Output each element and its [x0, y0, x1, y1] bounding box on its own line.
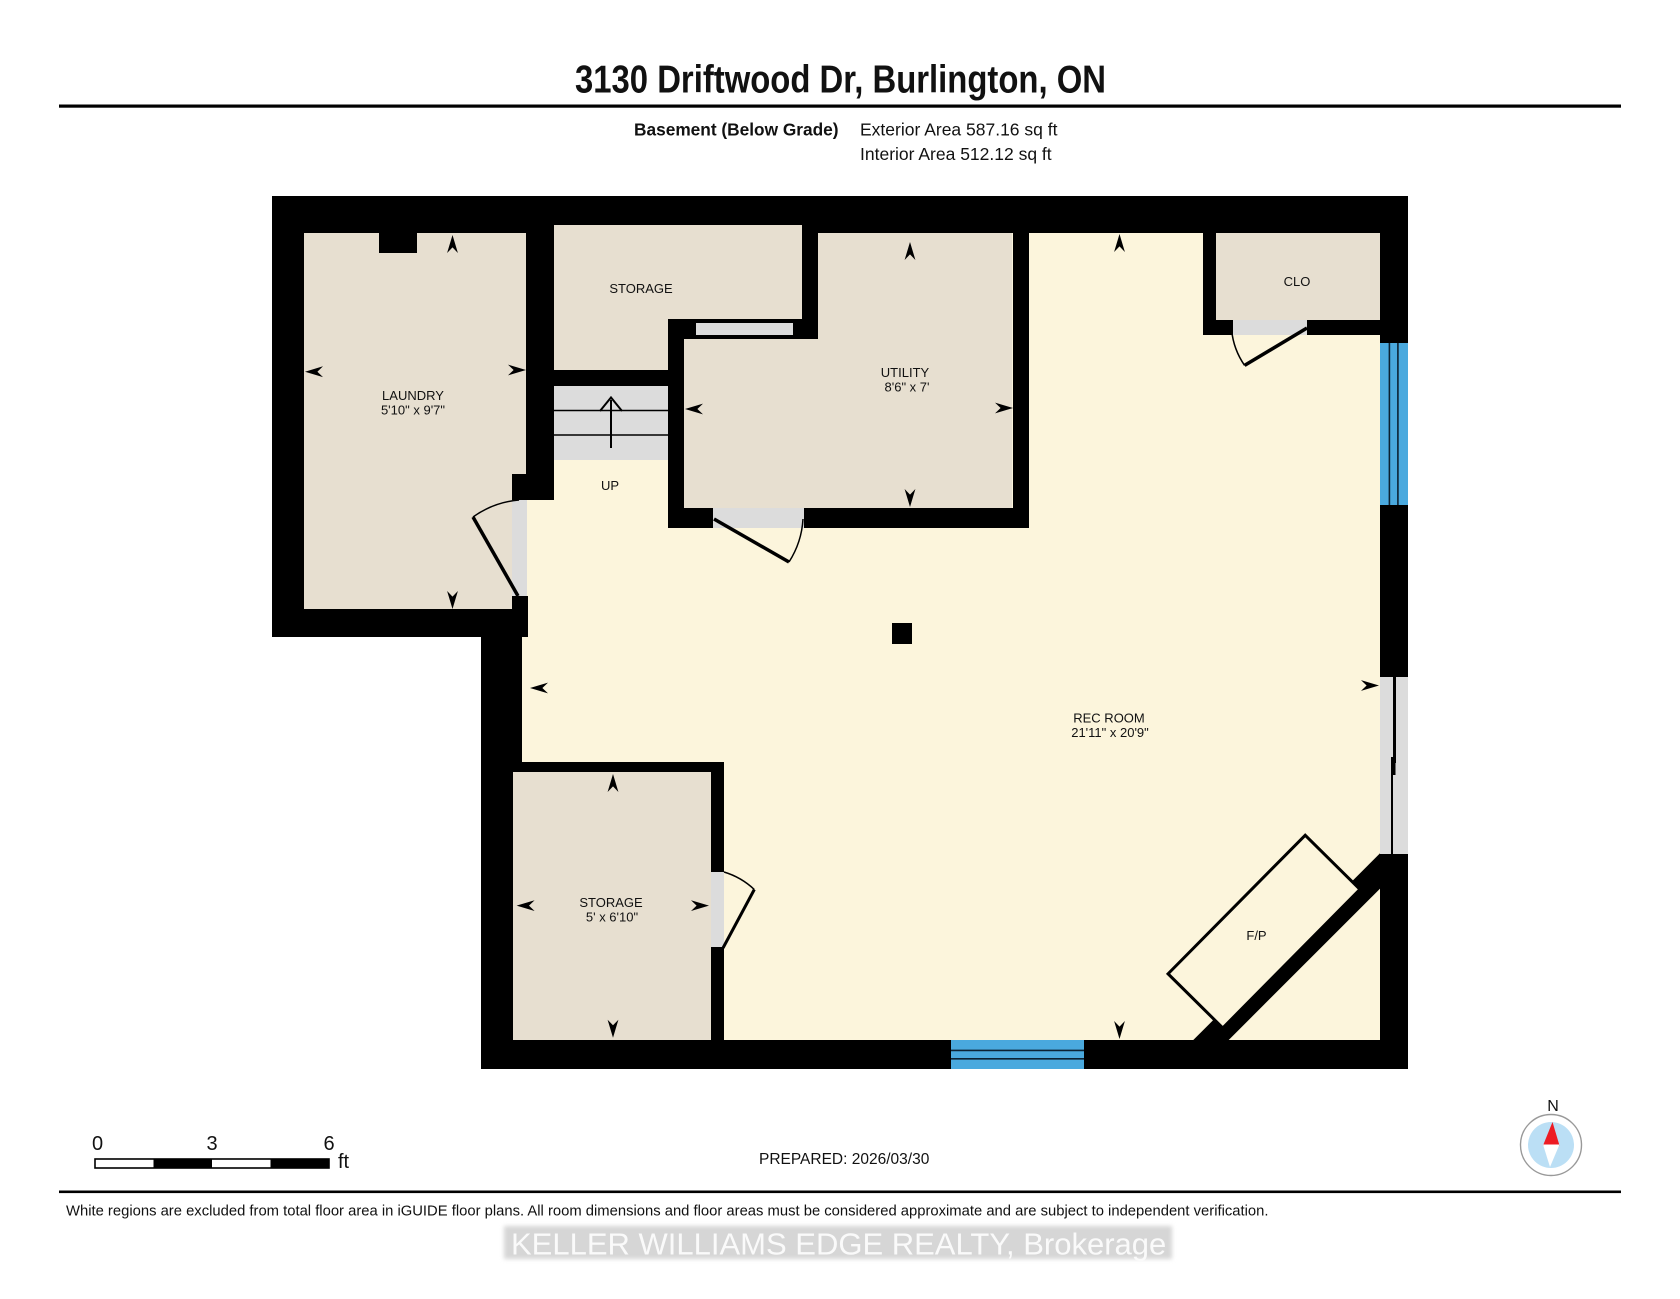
svg-text:ft: ft	[338, 1151, 350, 1173]
svg-text:STORAGE: STORAGE	[609, 281, 673, 296]
svg-text:5' x 6'10": 5' x 6'10"	[586, 910, 639, 925]
svg-text:Exterior Area 587.16 sq ft: Exterior Area 587.16 sq ft	[860, 120, 1058, 140]
svg-text:LAUNDRY: LAUNDRY	[382, 388, 444, 403]
svg-text:CLO: CLO	[1284, 274, 1311, 289]
svg-text:REC ROOM: REC ROOM	[1073, 710, 1145, 725]
svg-text:PREPARED: 2026/03/30: PREPARED: 2026/03/30	[759, 1151, 930, 1168]
svg-text:5'10" x 9'7": 5'10" x 9'7"	[381, 403, 445, 418]
svg-text:F/P: F/P	[1246, 928, 1266, 943]
svg-text:Interior Area 512.12 sq ft: Interior Area 512.12 sq ft	[860, 144, 1052, 164]
svg-text:White regions are excluded fro: White regions are excluded from total fl…	[66, 1204, 1268, 1220]
svg-text:UTILITY: UTILITY	[881, 365, 930, 380]
svg-text:21'11" x 20'9": 21'11" x 20'9"	[1071, 725, 1149, 740]
svg-text:KELLER WILLIAMS EDGE REALTY, B: KELLER WILLIAMS EDGE REALTY, Brokerage	[511, 1227, 1166, 1262]
svg-text:3: 3	[206, 1133, 217, 1155]
svg-text:3130 Driftwood Dr, Burlington,: 3130 Driftwood Dr, Burlington, ON	[575, 59, 1106, 102]
svg-text:0: 0	[92, 1133, 103, 1155]
svg-text:8'6" x 7': 8'6" x 7'	[885, 380, 930, 395]
svg-text:6: 6	[323, 1133, 334, 1155]
svg-text:N: N	[1547, 1098, 1559, 1115]
svg-text:STORAGE: STORAGE	[579, 895, 643, 910]
svg-text:Basement (Below Grade): Basement (Below Grade)	[634, 120, 839, 140]
svg-text:UP: UP	[601, 478, 619, 493]
